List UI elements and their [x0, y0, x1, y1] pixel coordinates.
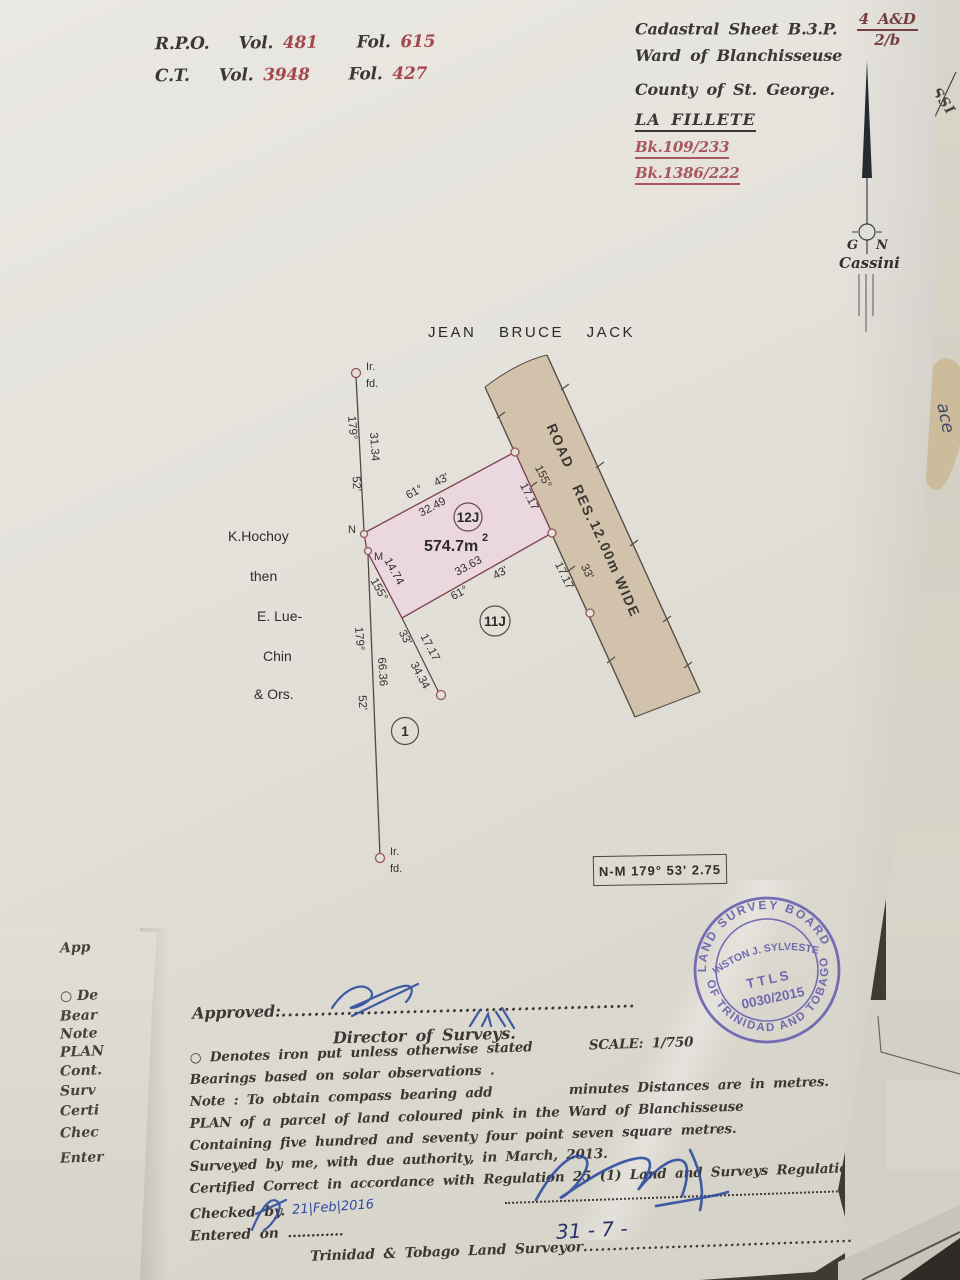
approved-date-scribble — [470, 1008, 514, 1028]
checked-by-signature — [252, 1200, 286, 1230]
approved-signature — [332, 986, 412, 1008]
surveyor-signature — [536, 1150, 728, 1210]
